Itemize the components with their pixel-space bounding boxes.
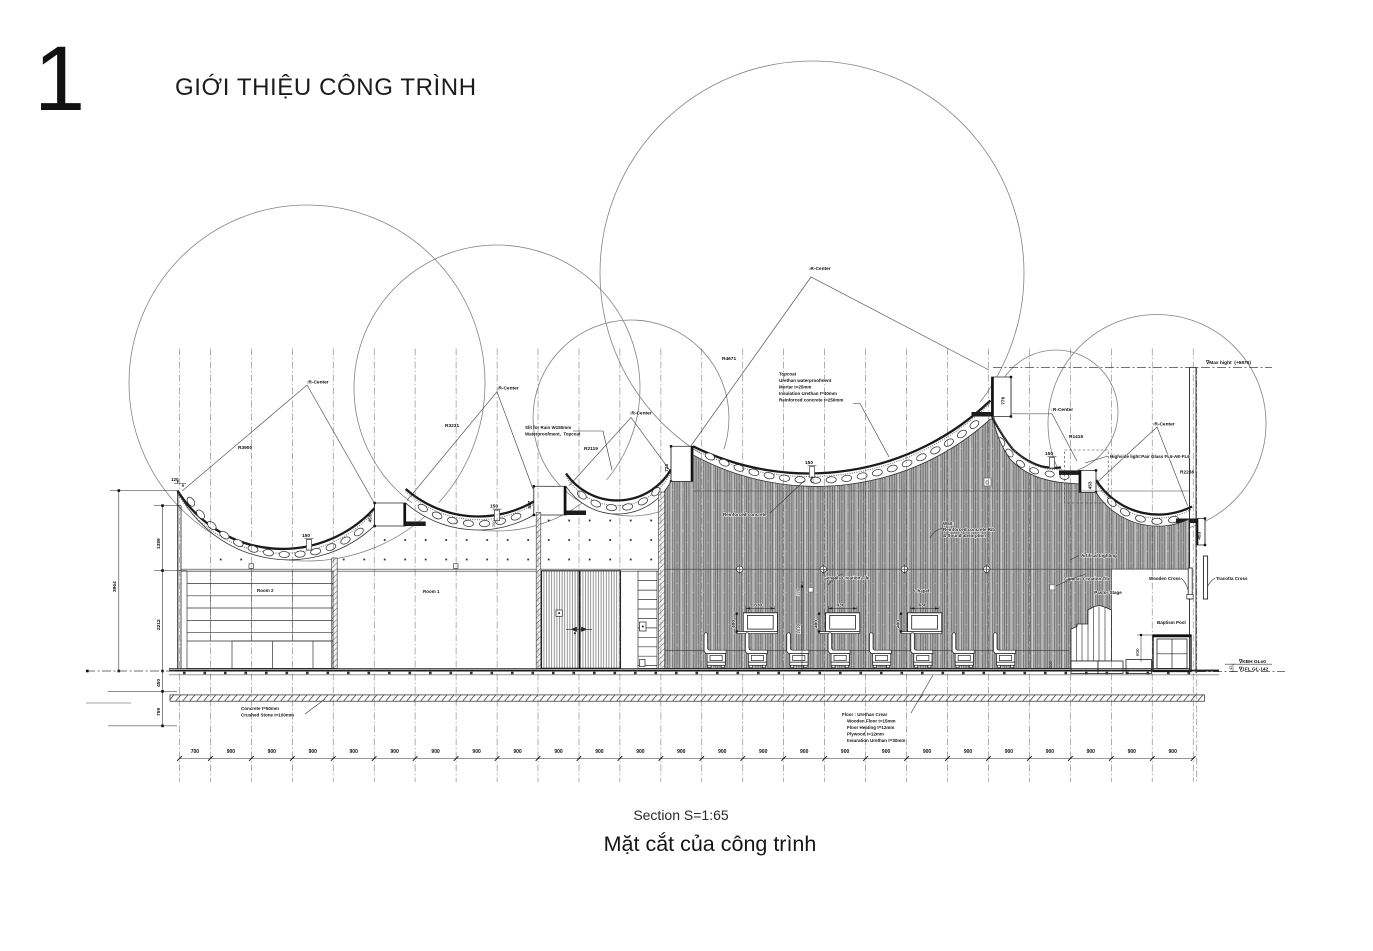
svg-text:Highside light:Pair Glass FL6-: Highside light:Pair Glass FL6-AE-FL6 <box>1110 454 1190 459</box>
svg-text:700: 700 <box>191 749 200 755</box>
svg-text:Floor : Urethan Crear: Floor : Urethan Crear <box>842 712 888 717</box>
svg-text:R3231: R3231 <box>445 423 459 429</box>
svg-text:Reinforced concrete: Reinforced concrete <box>723 512 767 517</box>
svg-text:R2288: R2288 <box>1180 470 1194 476</box>
svg-text:Room 1: Room 1 <box>423 589 440 594</box>
svg-text:1389: 1389 <box>156 538 162 549</box>
svg-text:200: 200 <box>1048 661 1053 668</box>
svg-text:723: 723 <box>664 464 670 472</box>
svg-text:Wooden Cross: Wooden Cross <box>1149 576 1181 581</box>
svg-text:630: 630 <box>754 602 762 608</box>
svg-text:900: 900 <box>1169 749 1178 755</box>
svg-text:Slit for Rain W150mm: Slit for Rain W150mm <box>525 425 571 430</box>
svg-text:150: 150 <box>805 460 813 466</box>
svg-text:900: 900 <box>309 749 318 755</box>
svg-text:↓R-Center: ↓R-Center <box>1051 407 1074 413</box>
svg-text:R2119: R2119 <box>584 446 598 452</box>
svg-text:900: 900 <box>595 749 604 755</box>
svg-text:600: 600 <box>1135 648 1140 656</box>
svg-text:Urethan waterproofment: Urethan waterproofment <box>779 378 832 383</box>
svg-text:↓R-Center: ↓R-Center <box>1152 422 1175 428</box>
svg-text:900: 900 <box>513 749 522 755</box>
svg-text:Insuration Urethan t=30mm: Insuration Urethan t=30mm <box>847 738 905 743</box>
svg-text:Crushed Stone t=100mm: Crushed Stone t=100mm <box>241 713 294 718</box>
svg-text:453: 453 <box>1197 531 1203 539</box>
svg-text:630: 630 <box>837 602 845 608</box>
svg-text:900: 900 <box>882 749 891 755</box>
svg-text:900: 900 <box>800 749 809 755</box>
svg-text:∇Max hight (+6876): ∇Max hight (+6876) <box>1205 360 1251 366</box>
svg-text:3964: 3964 <box>112 581 118 592</box>
svg-text:400: 400 <box>895 620 901 628</box>
svg-text:Room 2: Room 2 <box>257 588 274 593</box>
svg-text:900: 900 <box>431 749 440 755</box>
svg-text:900: 900 <box>1128 749 1137 755</box>
svg-text:↓R-Center: ↓R-Center <box>496 385 519 391</box>
svg-text:Pastor Stage: Pastor Stage <box>1094 590 1122 595</box>
svg-text:Section S=1:65: Section S=1:65 <box>633 807 729 823</box>
svg-text:900: 900 <box>472 749 481 755</box>
svg-text:∇KBH GL±0: ∇KBH GL±0 <box>1238 659 1266 665</box>
svg-text:∇1FL GL-142: ∇1FL GL-142 <box>1238 667 1269 673</box>
svg-text:Floor Heating t=12mm: Floor Heating t=12mm <box>847 725 894 730</box>
svg-text:R1415: R1415 <box>1069 434 1083 440</box>
svg-text:900: 900 <box>554 749 563 755</box>
svg-text:↓R-Center: ↓R-Center <box>808 266 831 272</box>
svg-text:42: 42 <box>1228 665 1233 670</box>
svg-text:250: 250 <box>810 476 815 483</box>
svg-text:900: 900 <box>759 749 768 755</box>
svg-text:450: 450 <box>156 679 162 687</box>
svg-text:Mặt cắt của công trình: Mặt cắt của công trình <box>604 831 817 856</box>
svg-text:900: 900 <box>1087 749 1096 755</box>
svg-text:900: 900 <box>636 749 645 755</box>
svg-text:400: 400 <box>813 620 819 628</box>
svg-text:900: 900 <box>964 749 973 755</box>
svg-text:2212: 2212 <box>156 619 162 630</box>
svg-text:Reinforced concrete Rib: Reinforced concrete Rib <box>943 527 995 532</box>
svg-text:Chapel: Chapel <box>914 588 929 593</box>
svg-text:900: 900 <box>1005 749 1014 755</box>
svg-text:Genesis Creation Tile: Genesis Creation Tile <box>1064 576 1110 581</box>
svg-text:Baptism Pool: Baptism Pool <box>1157 620 1186 625</box>
svg-text:250: 250 <box>491 520 496 527</box>
svg-text:Reinforced concrete t=250mm: Reinforced concrete t=250mm <box>779 398 843 403</box>
svg-text:150: 150 <box>302 533 310 539</box>
svg-text:R3900: R3900 <box>238 445 252 451</box>
svg-text:Topcoat: Topcoat <box>779 372 797 377</box>
svg-text:630: 630 <box>919 602 927 608</box>
svg-text:↓R-Center: ↓R-Center <box>629 411 652 417</box>
svg-text:900: 900 <box>677 749 686 755</box>
svg-text:776: 776 <box>1001 396 1007 404</box>
svg-text:900: 900 <box>350 749 359 755</box>
svg-text:Genesis Creation Tile: Genesis Creation Tile <box>823 576 869 581</box>
svg-text:587: 587 <box>527 500 533 508</box>
svg-text:Insulation Urethan t=40mm: Insulation Urethan t=40mm <box>779 391 837 396</box>
svg-text:900: 900 <box>923 749 932 755</box>
svg-text:453: 453 <box>368 514 374 522</box>
svg-text:GIỚI THIỆU CÔNG TRÌNH: GIỚI THIỆU CÔNG TRÌNH <box>175 73 477 101</box>
svg-text:759: 759 <box>156 708 162 716</box>
svg-text:900: 900 <box>268 749 277 755</box>
svg-text:110: 110 <box>796 588 801 596</box>
svg-text:R4671: R4671 <box>722 356 736 362</box>
svg-text:1810: 1810 <box>796 623 801 634</box>
svg-text:900: 900 <box>841 749 850 755</box>
svg-text:1: 1 <box>34 28 85 130</box>
svg-text:900: 900 <box>1046 749 1055 755</box>
svg-text:0: 0 <box>986 481 989 487</box>
svg-text:900: 900 <box>227 749 236 755</box>
svg-text:Wooden Floor t=15mm: Wooden Floor t=15mm <box>847 719 896 724</box>
svg-text:900: 900 <box>718 749 727 755</box>
svg-text:400: 400 <box>731 620 737 628</box>
svg-text:Tracotta Cross: Tracotta Cross <box>1216 576 1248 581</box>
svg-text:900: 900 <box>391 749 400 755</box>
svg-text:453: 453 <box>1088 481 1094 489</box>
svg-text:& Sound absorption: & Sound absorption <box>943 533 986 538</box>
svg-text:Wall:: Wall: <box>943 521 954 526</box>
svg-text:150: 150 <box>1045 451 1053 457</box>
svg-text:Waterproofment, Topcoat: Waterproofment, Topcoat <box>525 432 581 437</box>
svg-text:Concrete t=50mm: Concrete t=50mm <box>241 706 279 711</box>
svg-text:Artifical Lighting: Artifical Lighting <box>1081 553 1117 558</box>
svg-text:↓R-Center: ↓R-Center <box>306 380 329 386</box>
